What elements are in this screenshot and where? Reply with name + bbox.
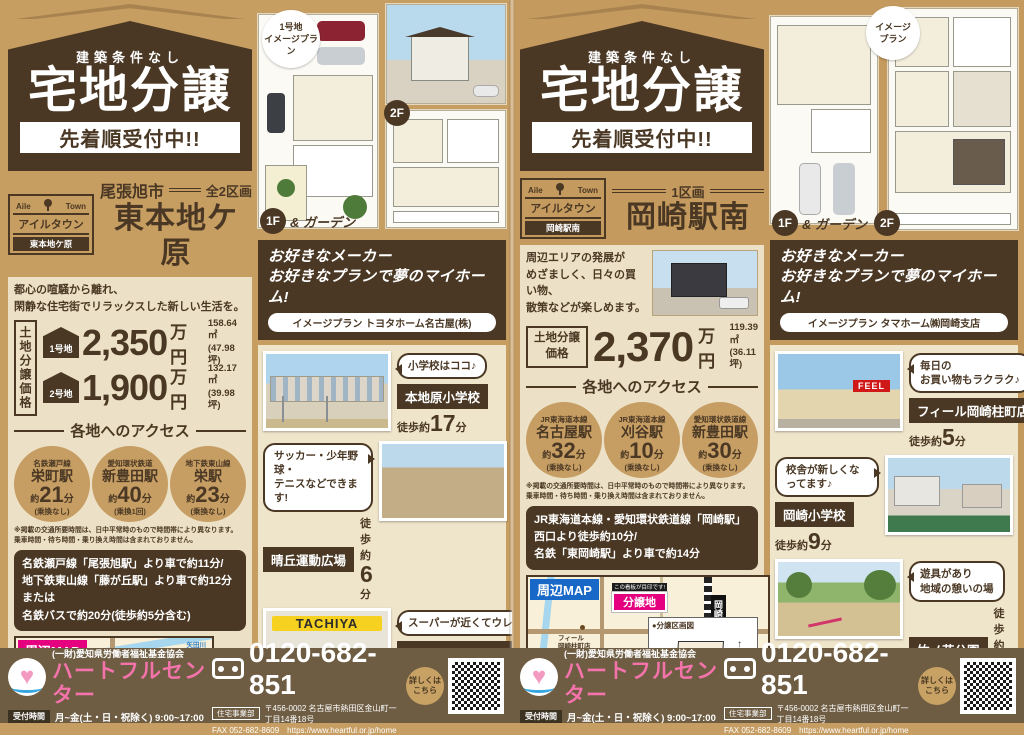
hours-value: 月~金(土・日・祝除く) 9:00~17:00 (55, 710, 204, 724)
station-circle-nagoya: JR東海道本線 名古屋駅 約32分 (乗換なし) (526, 402, 602, 478)
logo-area: 岡崎駅南 (525, 221, 601, 235)
plan-badge: 1号地 イメージプラン (262, 10, 320, 68)
promo-band: お好きなメーカー お好きなプランで夢のマイホーム! イメージプラン タマホーム㈱… (770, 240, 1018, 340)
map-label-feel: フィール 岡崎柱町店 (558, 635, 591, 648)
phone-number: 0120-682-851 (249, 637, 400, 701)
promo-builder: イメージプラン トヨタホーム名古屋(株) (268, 313, 496, 332)
heart-logo-icon (520, 658, 558, 696)
playground-equipment (808, 618, 842, 628)
speech-bubble: 遊具があり 地域の憩いの場 (909, 561, 1005, 601)
footer-unit-left: (一財)愛知県労働者福祉基金協会 ハートフルセンター 受付時間 月~金(土・日・… (0, 648, 512, 723)
station-circle-kariya: JR東海道本線 刈谷駅 約10分 (乗換なし) (604, 402, 680, 478)
spot-park: 遊具があり 地域の憩いの場 竹ノ花公園 徒歩約2分 (775, 559, 1013, 648)
price-label: 土地分譲価格 (14, 320, 37, 416)
spot-feel: FEEL 毎日の お買い物もラクラク♪ フィール岡崎柱町店 徒歩約5分 (775, 351, 1013, 449)
location-city: 尾張旭市 (100, 178, 164, 202)
area-map: 周辺MAP 名鉄尾張旭駅 矢田川 尾張旭市民プール この看板が目印です! 分譲地 (14, 636, 214, 648)
balcony (393, 211, 499, 223)
station-circle-shintoyota: 愛知環状鉄道線 新豊田駅 約30分 (乗換なし) (682, 402, 758, 478)
header-title: 宅地分譲 (520, 66, 764, 117)
divider-line (710, 189, 764, 193)
transit-note: ※掲載の交通所要時間は、日中平常時のもので時間帯により異なります。 乗車時間・待… (526, 482, 758, 502)
lot2-badge: 2号地 (43, 372, 79, 403)
floor1-tag: 1F & ガーデン (260, 208, 355, 234)
flyer-page-okazakiekiminami: 建築条件なし 宅地分譲 先着順受付中!! Aile Town アイルタウン 岡崎… (512, 0, 1024, 648)
price-label: 土地分譲 価格 (526, 326, 588, 367)
car-access-box: 名鉄瀬戸線「尾張旭駅」より車で約11分/ 地下鉄東山線「藤が丘駅」より車で約12… (14, 550, 246, 630)
logo-name: アイルタウン (525, 197, 601, 219)
lot1-badge: 1号地 (43, 327, 79, 358)
location-units: 全2区画 (206, 181, 252, 200)
organization-name: (一財)愛知県労働者福祉基金協会 (564, 647, 718, 660)
station-circles: 名鉄瀬戸線 栄町駅 約21分 (乗換なし) 愛知環状鉄道 新豊田駅 約40分 (… (14, 446, 246, 522)
location-block: 尾張旭市 全2区画 東本地ケ原 (100, 178, 252, 271)
price-block: 土地分譲 価格 2,370 万円 119.39㎡ (36.11坪) (526, 322, 758, 372)
brand-row: Aile Town アイルタウン 東本地ケ原 尾張旭市 全2区画 東本地ケ原 (8, 178, 252, 271)
website-url: https://www.heartful.or.jp/home (287, 726, 396, 735)
station-circle-shintoyota: 愛知環状鉄道 新豊田駅 約40分 (乗換1回) (92, 446, 168, 522)
roof-accent (15, 4, 245, 19)
speech-bubble: 小学校はココ♪ (397, 353, 487, 379)
floor1-tag: 1F & ガーデン (772, 210, 867, 236)
qr-code (448, 658, 504, 714)
red-car (317, 21, 365, 41)
page-fold (509, 0, 515, 648)
divider-line (612, 189, 666, 193)
location-name: 東本地ケ原 (100, 202, 252, 271)
spot-ground: サッカー・少年野球・ テニスなどできます! 晴丘運動広場 徒歩約6分 (263, 441, 501, 602)
tree-icon (43, 199, 53, 211)
house-render-photo (652, 250, 758, 316)
main-header: 建築条件なし 宅地分譲 先着順受付中!! (8, 21, 252, 171)
station-circle-sakae: 地下鉄東山線 栄駅 約23分 (乗換なし) (170, 446, 246, 522)
hours-label: 受付時間 (8, 710, 50, 723)
price-row-lot1: 1号地 2,350 万円 158.64㎡ (47.98坪) (43, 320, 246, 365)
floor2-tag: 2F (384, 100, 410, 126)
feel-store-photo: FEEL (775, 351, 903, 431)
price-row-lot2: 2号地 1,900 万円 132.17㎡ (39.98坪) (43, 365, 246, 410)
lot1-area: 158.64㎡ (47.98坪) (208, 318, 246, 367)
neighborhood-panel: FEEL 毎日の お買い物もラクラク♪ フィール岡崎柱町店 徒歩約5分 校舎が新… (770, 345, 1018, 648)
address: 〒456-0002 名古屋市熱田区金山町一丁目14番18号 (777, 703, 913, 725)
tree-illustration (277, 179, 295, 197)
floor2-tag: 2F (874, 210, 900, 236)
qr-caption: 詳しくは こちら (918, 667, 956, 705)
transit-note: ※掲載の交通所要時間は、日中平常時のもので時間帯により異なります。 乗車時間・待… (14, 526, 246, 546)
department-label: 住宅事業部 (212, 707, 260, 720)
feel-sign: FEEL (853, 380, 890, 392)
gray-car (317, 47, 365, 65)
house-render-photo (386, 4, 506, 104)
access-heading: 各地へのアクセス (14, 420, 246, 441)
divider-line (169, 188, 201, 192)
main-header: 建築条件なし 宅地分譲 先着順受付中!! (520, 21, 764, 171)
site-signboard: この看板が目印です! 分譲地 (612, 583, 667, 612)
price-value: 2,370 (593, 326, 693, 368)
department-label: 住宅事業部 (724, 707, 772, 720)
speech-bubble: 毎日の お買い物もラクラク♪ (909, 353, 1024, 393)
dark-car (267, 93, 285, 133)
ailetown-logo: Aile Town アイルタウン 東本地ケ原 (8, 194, 94, 255)
heart-logo-icon (8, 658, 46, 696)
left-info-panel: 周辺エリアの発展が めざましく、日々の買い物、 散策などが楽しめます。 土地分譲… (520, 245, 764, 648)
flyer-page-higashihonjigahara: 建築条件なし 宅地分譲 先着順受付中!! Aile Town アイルタウン 東本… (0, 0, 512, 648)
footer-bar: (一財)愛知県労働者福祉基金協会 ハートフルセンター 受付時間 月~金(土・日・… (0, 648, 1024, 723)
tachiya-sign: TACHIYA (272, 616, 382, 631)
location-block: 1区画 岡崎駅南 (612, 182, 764, 236)
left-info-panel: 都心の喧騒から離れ、 閑静な住宅街でリラックスした新しい生活を。 土地分譲価格 … (8, 277, 252, 648)
qr-code (960, 658, 1016, 714)
center-name: ハートフルセンター (564, 660, 718, 706)
qr-caption: 詳しくは こちら (406, 667, 444, 705)
school-photo (263, 351, 391, 431)
station-circle-sakaemachi: 名鉄瀬戸線 栄町駅 約21分 (乗換なし) (14, 446, 90, 522)
roof-accent (527, 4, 757, 19)
park-photo (775, 559, 903, 639)
address: 〒456-0002 名古屋市熱田区金山町一丁目14番18号 (265, 703, 401, 725)
fax-number: FAX 052-682-8609 (724, 726, 791, 735)
organization-name: (一財)愛知県労働者福祉基金協会 (52, 647, 206, 660)
phone-number: 0120-682-851 (761, 637, 912, 701)
header-banner: 先着順受付中!! (20, 122, 240, 153)
header-title: 宅地分譲 (8, 66, 252, 117)
logo-name: アイルタウン (13, 213, 89, 235)
hours-label: 受付時間 (520, 710, 562, 723)
speech-bubble: 校舎が新しくなってます♪ (775, 457, 879, 497)
neighborhood-panel: 小学校はココ♪ 本地原小学校 徒歩約17分 サッカー・少年野球・ テニスなどでき… (258, 345, 506, 648)
price-block: 土地分譲価格 1号地 2,350 万円 158.64㎡ (47.98坪) 2号地… (14, 320, 246, 416)
map-title: 周辺MAP (530, 579, 599, 600)
station-circles: JR東海道本線 名古屋駅 約32分 (乗換なし) JR東海道本線 刈谷駅 約10… (526, 402, 758, 478)
floorplan-1f (770, 16, 878, 224)
lot1-price: 2,350 (82, 325, 167, 361)
fax-number: FAX 052-682-8609 (212, 726, 279, 735)
balcony (895, 213, 1011, 225)
logo-en-right: Town (66, 202, 86, 211)
lot2-price: 1,900 (82, 370, 167, 406)
spot-elementary: 小学校はココ♪ 本地原小学校 徒歩約17分 (263, 351, 501, 435)
location-units: 1区画 (671, 182, 704, 201)
promo-band: お好きなメーカー お好きなプランで夢のマイホーム! イメージプラン トヨタホーム… (258, 240, 506, 340)
catch-copy: 都心の喧騒から離れ、 閑静な住宅街でリラックスした新しい生活を。 (14, 282, 246, 315)
freedial-icon (212, 658, 244, 679)
catch-copy: 周辺エリアの発展が めざましく、日々の買い物、 散策などが楽しめます。 (526, 250, 646, 316)
logo-en-left: Aile (16, 202, 31, 211)
hours-value: 月~金(土・日・祝除く) 9:00~17:00 (567, 710, 716, 724)
price-area: 119.39㎡ (36.11坪) (729, 322, 758, 371)
brand-row: Aile Town アイルタウン 岡崎駅南 1区画 岡崎駅南 (520, 178, 764, 239)
location-name: 岡崎駅南 (612, 201, 764, 236)
access-heading: 各地へのアクセス (526, 376, 758, 397)
tree-icon (555, 183, 565, 195)
header-banner: 先着順受付中!! (532, 122, 752, 153)
spot-okazaki-elementary: 校舎が新しくなってます♪ 岡崎小学校 徒歩約9分 (775, 455, 1013, 553)
lot2-area: 132.17㎡ (39.98坪) (208, 363, 246, 412)
floorplan-2f (386, 110, 506, 228)
car-access-box: JR東海道本線・愛知環状鉄道線「岡崎駅」西口より徒歩約10分/ 名鉄「東岡崎駅」… (526, 506, 758, 569)
school-construction-photo (885, 455, 1013, 535)
bed-illustration (953, 139, 1005, 185)
ailetown-logo: Aile Town アイルタウン 岡崎駅南 (520, 178, 606, 239)
speech-bubble: スーパーが近くてウレシイ! (397, 610, 512, 636)
center-name: ハートフルセンター (52, 660, 206, 706)
promo-builder: イメージプラン タマホーム㈱岡崎支店 (780, 313, 1008, 332)
freedial-icon (724, 658, 756, 679)
website-url: https://www.heartful.or.jp/home (799, 726, 908, 735)
footer-unit-right: (一財)愛知県労働者福祉基金協会 ハートフルセンター 受付時間 月~金(土・日・… (512, 648, 1024, 723)
logo-area: 東本地ケ原 (13, 237, 89, 251)
speech-bubble: サッカー・少年野球・ テニスなどできます! (263, 443, 373, 512)
plan-badge: イメージ プラン (866, 6, 920, 60)
sports-ground-photo (379, 441, 507, 521)
